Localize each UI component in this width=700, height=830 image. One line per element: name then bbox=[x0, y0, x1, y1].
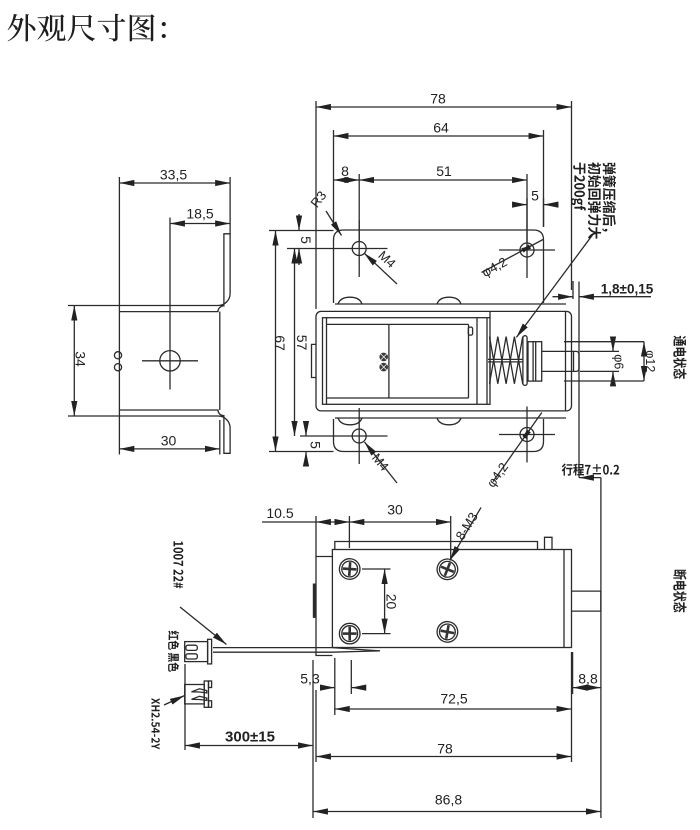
svg-text:64: 64 bbox=[433, 120, 449, 136]
svg-text:57: 57 bbox=[294, 335, 310, 351]
svg-text:R3: R3 bbox=[307, 188, 329, 210]
svg-text:78: 78 bbox=[430, 91, 446, 107]
svg-text:φ4,2: φ4,2 bbox=[479, 254, 509, 280]
svg-text:5,3: 5,3 bbox=[300, 671, 320, 687]
svg-text:78: 78 bbox=[437, 741, 453, 757]
svg-text:33,5: 33,5 bbox=[160, 167, 187, 183]
svg-text:M4: M4 bbox=[369, 450, 392, 473]
svg-text:67: 67 bbox=[272, 335, 288, 351]
svg-text:86,8: 86,8 bbox=[435, 792, 462, 808]
svg-text:30: 30 bbox=[387, 502, 403, 518]
svg-text:300±15: 300±15 bbox=[225, 729, 275, 746]
svg-text:34: 34 bbox=[73, 351, 89, 367]
svg-text:1,8±0,15: 1,8±0,15 bbox=[601, 282, 654, 297]
svg-text:18,5: 18,5 bbox=[186, 206, 213, 222]
svg-text:φ4,2: φ4,2 bbox=[484, 460, 511, 490]
svg-text:φ6: φ6 bbox=[612, 354, 626, 369]
svg-text:10.5: 10.5 bbox=[266, 505, 293, 521]
svg-text:30: 30 bbox=[161, 433, 177, 449]
svg-text:20: 20 bbox=[384, 594, 400, 610]
svg-text:8: 8 bbox=[341, 163, 349, 179]
svg-text:5: 5 bbox=[531, 188, 539, 204]
svg-text:51: 51 bbox=[436, 163, 452, 179]
svg-text:72,5: 72,5 bbox=[440, 691, 467, 707]
svg-text:8,8: 8,8 bbox=[578, 671, 598, 687]
svg-text:φ12: φ12 bbox=[643, 350, 657, 372]
svg-text:5: 5 bbox=[298, 236, 314, 244]
svg-text:5: 5 bbox=[308, 441, 324, 449]
